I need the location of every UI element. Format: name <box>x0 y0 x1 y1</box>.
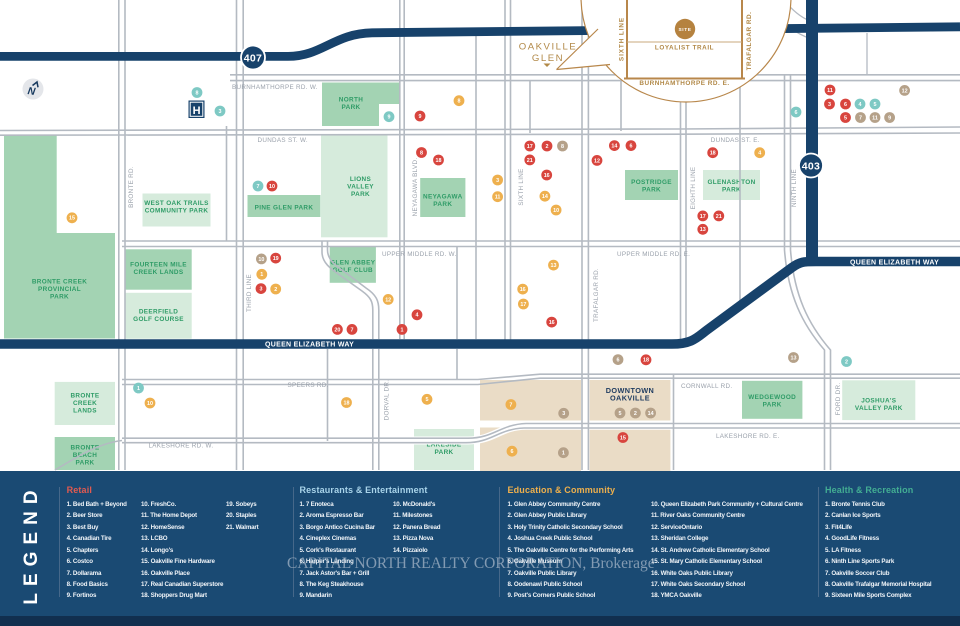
svg-text:PARK: PARK <box>433 201 452 208</box>
svg-text:7: 7 <box>859 115 862 121</box>
svg-text:5: 5 <box>874 102 877 108</box>
svg-text:SITE: SITE <box>678 27 691 33</box>
svg-text:NORTH: NORTH <box>339 97 364 104</box>
svg-text:2: 2 <box>546 144 549 150</box>
svg-text:GOLF COURSE: GOLF COURSE <box>133 316 184 323</box>
svg-text:PARK: PARK <box>341 104 360 111</box>
svg-text:6: 6 <box>844 102 847 108</box>
svg-text:8: 8 <box>196 90 199 96</box>
svg-text:8: 8 <box>420 150 423 156</box>
svg-text:10: 10 <box>258 257 264 263</box>
svg-text:5: 5 <box>426 397 429 403</box>
svg-text:7: 7 <box>257 184 260 190</box>
svg-text:LOYALIST TRAIL: LOYALIST TRAIL <box>655 45 714 52</box>
svg-text:8: 8 <box>561 144 564 150</box>
svg-text:LIONS: LIONS <box>350 176 372 183</box>
svg-text:2: 2 <box>274 287 277 293</box>
svg-text:12: 12 <box>594 158 600 164</box>
svg-text:PINE GLEN PARK: PINE GLEN PARK <box>255 205 314 212</box>
svg-text:FOURTEEN MILE: FOURTEEN MILE <box>130 262 187 269</box>
svg-text:SPEERS RD.: SPEERS RD. <box>288 382 329 389</box>
svg-text:17: 17 <box>520 302 526 308</box>
svg-text:17: 17 <box>700 214 706 220</box>
svg-text:17: 17 <box>527 144 533 150</box>
svg-text:1: 1 <box>401 327 404 333</box>
svg-text:407: 407 <box>244 52 262 64</box>
svg-text:BRONTE RD.: BRONTE RD. <box>128 166 135 208</box>
svg-text:OAKVILLE: OAKVILLE <box>519 42 577 53</box>
svg-text:2: 2 <box>634 411 637 417</box>
svg-text:CORNWALL RD.: CORNWALL RD. <box>681 383 732 390</box>
svg-text:2: 2 <box>845 359 848 365</box>
svg-text:13: 13 <box>700 227 706 233</box>
svg-text:16: 16 <box>544 173 550 179</box>
svg-text:16: 16 <box>520 287 526 293</box>
svg-text:DUNDAS ST. W.: DUNDAS ST. W. <box>258 137 308 144</box>
svg-text:16: 16 <box>549 320 555 326</box>
svg-text:10: 10 <box>269 184 275 190</box>
svg-text:UPPER MIDDLE RD. W.: UPPER MIDDLE RD. W. <box>382 251 457 258</box>
svg-text:H: H <box>193 105 201 117</box>
svg-text:9: 9 <box>419 114 422 120</box>
svg-text:VALLEY PARK: VALLEY PARK <box>855 405 903 412</box>
svg-text:QUEEN ELIZABETH WAY: QUEEN ELIZABETH WAY <box>265 342 354 349</box>
svg-text:3: 3 <box>496 178 499 184</box>
svg-text:PARK: PARK <box>763 402 782 409</box>
svg-text:6: 6 <box>617 358 620 364</box>
svg-text:DUNDAS ST. E.: DUNDAS ST. E. <box>711 137 760 144</box>
svg-text:PARK: PARK <box>351 191 370 198</box>
svg-text:9: 9 <box>388 115 391 121</box>
svg-text:LANDS: LANDS <box>73 408 97 415</box>
svg-text:7: 7 <box>509 402 512 408</box>
svg-text:11: 11 <box>827 88 833 94</box>
svg-text:21: 21 <box>716 214 722 220</box>
svg-text:GLEN: GLEN <box>532 53 564 64</box>
svg-text:BRONTE CREEK: BRONTE CREEK <box>32 279 87 286</box>
svg-text:FORD DR.: FORD DR. <box>835 383 842 416</box>
svg-text:1: 1 <box>137 386 140 392</box>
svg-text:WEDGEWOOD: WEDGEWOOD <box>748 394 796 401</box>
svg-text:11: 11 <box>495 195 501 201</box>
svg-text:18: 18 <box>710 151 716 157</box>
svg-text:PARK: PARK <box>434 449 453 456</box>
svg-text:4: 4 <box>416 313 419 319</box>
svg-text:18: 18 <box>344 400 350 406</box>
svg-text:403: 403 <box>802 160 820 172</box>
svg-text:PARK: PARK <box>75 460 94 467</box>
svg-text:6: 6 <box>795 110 798 116</box>
svg-text:14: 14 <box>611 144 617 150</box>
svg-text:12: 12 <box>385 297 391 303</box>
svg-text:3: 3 <box>260 287 263 293</box>
svg-text:6: 6 <box>630 144 633 150</box>
svg-text:CREEK: CREEK <box>73 400 97 407</box>
svg-text:6: 6 <box>511 449 514 455</box>
svg-text:TRAFALGAR RD.: TRAFALGAR RD. <box>593 268 600 322</box>
svg-text:1: 1 <box>260 272 263 278</box>
svg-text:POSTRIDGE: POSTRIDGE <box>631 179 672 186</box>
svg-text:3: 3 <box>219 109 222 115</box>
svg-text:OAKVILLE: OAKVILLE <box>610 394 650 403</box>
svg-text:13: 13 <box>791 355 797 361</box>
svg-text:10: 10 <box>553 208 559 214</box>
svg-text:QUEEN ELIZABETH WAY: QUEEN ELIZABETH WAY <box>850 259 939 266</box>
svg-text:8: 8 <box>458 99 461 105</box>
svg-text:9: 9 <box>888 115 891 121</box>
svg-text:VALLEY: VALLEY <box>347 184 374 191</box>
svg-text:SIXTH LINE: SIXTH LINE <box>518 168 525 205</box>
svg-text:15: 15 <box>69 216 75 222</box>
svg-text:11: 11 <box>872 115 878 121</box>
svg-text:THIRD LINE: THIRD LINE <box>246 274 253 312</box>
svg-text:21: 21 <box>527 158 533 164</box>
svg-text:PROVINCIAL: PROVINCIAL <box>38 286 81 293</box>
svg-text:12: 12 <box>902 88 908 94</box>
svg-text:PARK: PARK <box>50 294 69 301</box>
svg-text:JOSHUA'S: JOSHUA'S <box>861 398 897 405</box>
svg-text:NINTH LINE: NINTH LINE <box>791 169 798 207</box>
svg-text:15: 15 <box>620 435 626 441</box>
svg-text:UPPER MIDDLE RD. E.: UPPER MIDDLE RD. E. <box>617 251 690 258</box>
svg-text:WEST OAK TRAILS: WEST OAK TRAILS <box>144 200 209 207</box>
svg-text:3: 3 <box>828 102 831 108</box>
svg-text:10: 10 <box>147 401 153 407</box>
svg-text:SIXTH LINE: SIXTH LINE <box>619 17 626 61</box>
svg-text:5: 5 <box>844 115 847 121</box>
svg-text:20: 20 <box>334 327 340 333</box>
svg-text:19: 19 <box>273 256 279 262</box>
svg-text:DEERFIELD: DEERFIELD <box>139 309 178 316</box>
svg-text:LAKESHORE RD. E.: LAKESHORE RD. E. <box>716 433 780 440</box>
svg-text:18: 18 <box>436 158 442 164</box>
svg-text:GLENASHTON: GLENASHTON <box>707 179 755 186</box>
svg-text:CREEK LANDS: CREEK LANDS <box>133 269 183 276</box>
svg-text:7: 7 <box>351 327 354 333</box>
svg-text:PARK: PARK <box>722 187 741 194</box>
svg-text:4: 4 <box>859 102 862 108</box>
svg-text:PARK: PARK <box>642 187 661 194</box>
svg-text:1: 1 <box>562 451 565 457</box>
svg-text:EIGHTH LINE: EIGHTH LINE <box>690 167 697 210</box>
svg-text:BURNHAMTHORPE RD. E.: BURNHAMTHORPE RD. E. <box>639 80 729 87</box>
svg-text:5: 5 <box>619 411 622 417</box>
svg-text:BURNHAMTHORPE RD. W.: BURNHAMTHORPE RD. W. <box>232 84 318 91</box>
svg-text:DORVAL DR.: DORVAL DR. <box>383 380 390 421</box>
svg-text:4: 4 <box>758 151 761 157</box>
svg-text:NEYAGAWA: NEYAGAWA <box>423 194 463 201</box>
svg-text:TRAFALGAR RD.: TRAFALGAR RD. <box>746 12 753 71</box>
svg-text:BRONTE: BRONTE <box>70 393 99 400</box>
svg-text:LAKESHORE RD. W.: LAKESHORE RD. W. <box>149 443 214 450</box>
svg-text:14: 14 <box>648 411 654 417</box>
svg-text:13: 13 <box>551 263 557 269</box>
svg-text:3: 3 <box>562 411 565 417</box>
svg-text:18: 18 <box>643 358 649 364</box>
svg-text:COMMUNITY PARK: COMMUNITY PARK <box>145 208 209 215</box>
svg-text:14: 14 <box>542 194 548 200</box>
svg-text:NEYAGAWA BLVD.: NEYAGAWA BLVD. <box>412 158 419 217</box>
